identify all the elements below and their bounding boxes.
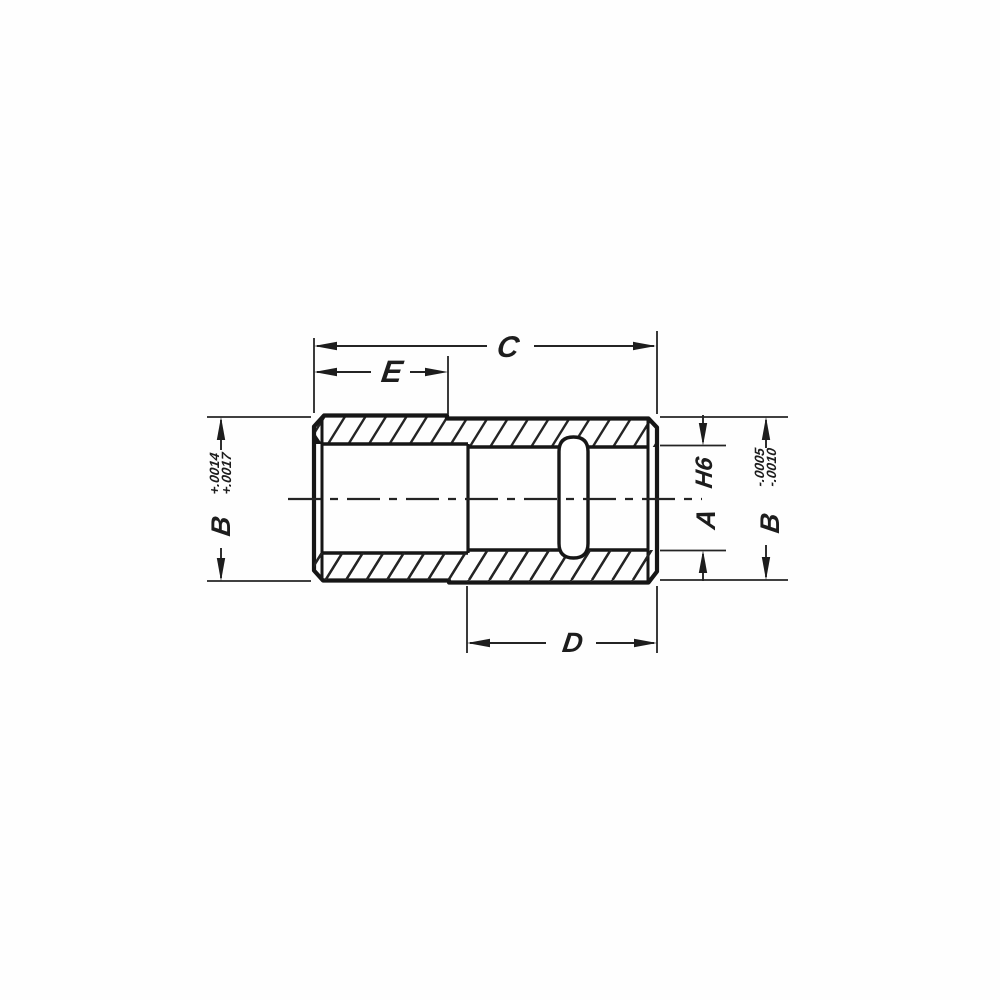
svg-text:H6: H6 bbox=[691, 455, 718, 490]
svg-text:+.0017: +.0017 bbox=[219, 450, 234, 495]
svg-text:A: A bbox=[690, 507, 721, 532]
svg-text:D: D bbox=[561, 627, 586, 658]
svg-text:-.0010: -.0010 bbox=[764, 447, 779, 488]
